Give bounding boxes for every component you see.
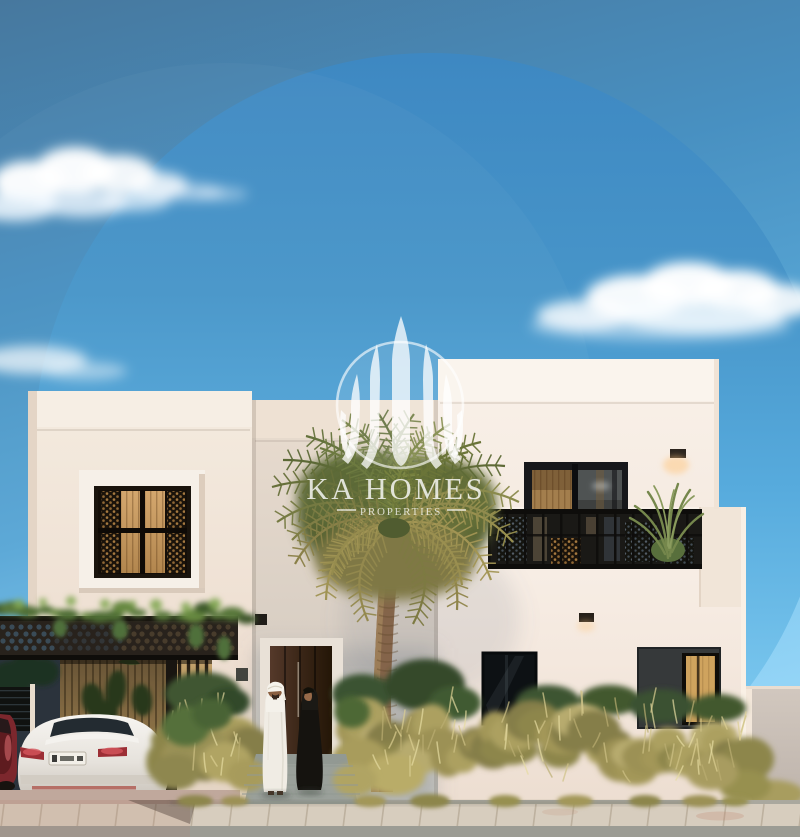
svg-text:KA HOMES: KA HOMES [306, 472, 485, 506]
svg-text:PROPERTIES: PROPERTIES [360, 506, 442, 518]
